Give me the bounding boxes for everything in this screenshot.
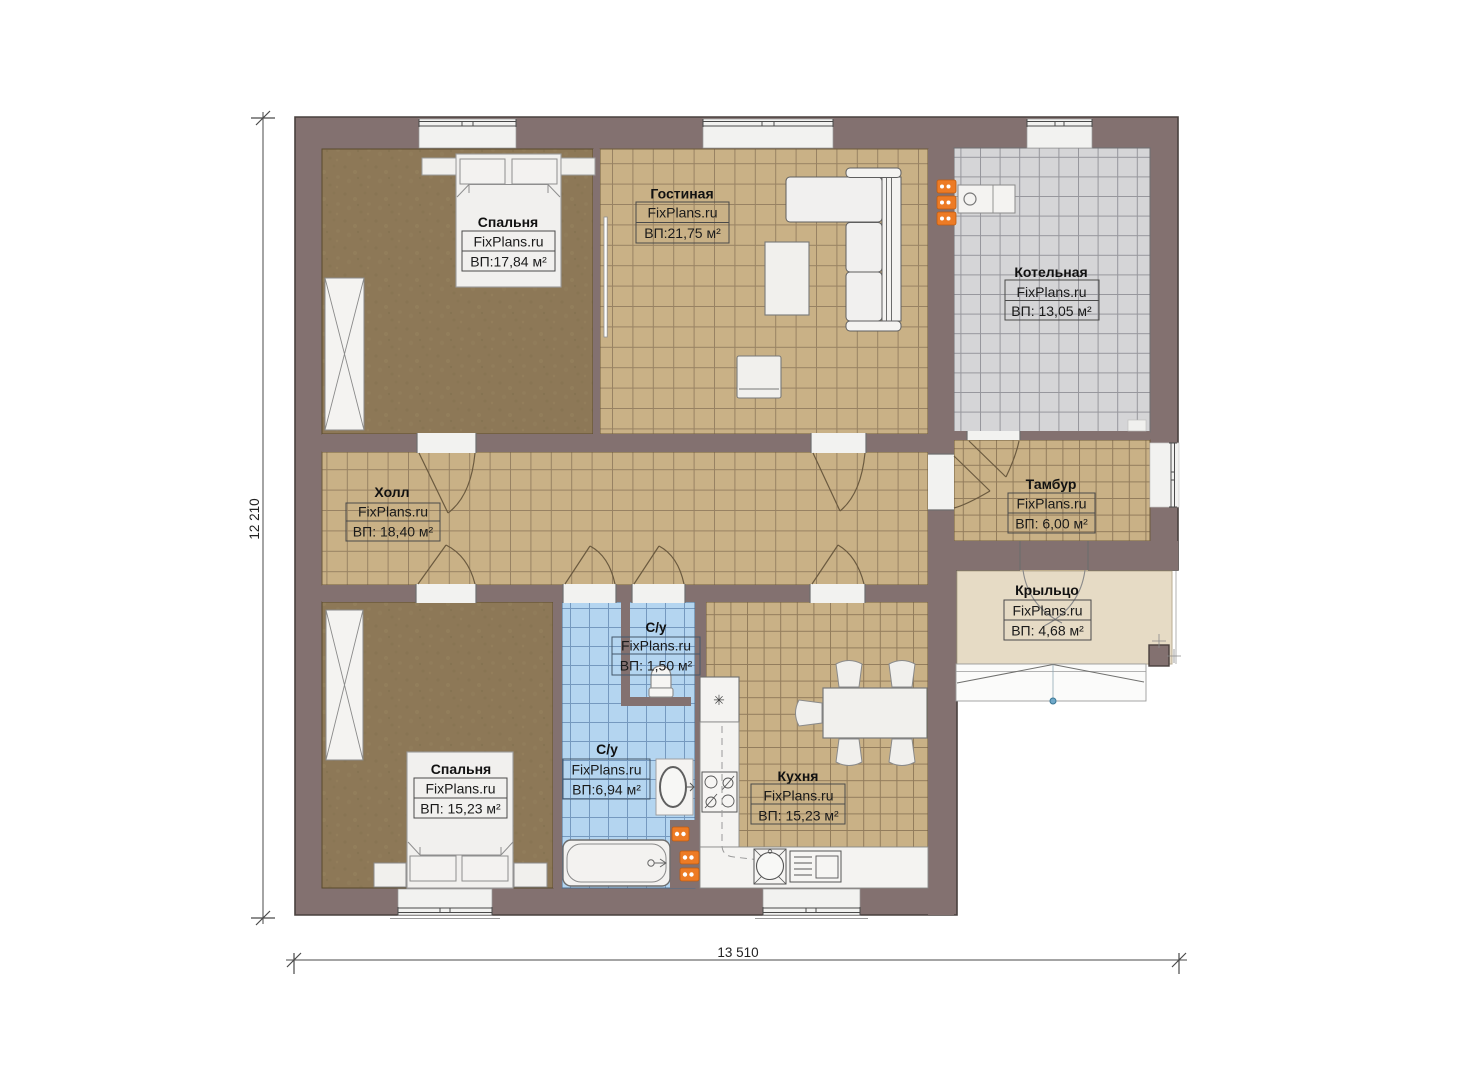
svg-text:FixPlans.ru: FixPlans.ru xyxy=(571,762,641,778)
svg-text:Холл: Холл xyxy=(374,484,409,500)
svg-text:FixPlans.ru: FixPlans.ru xyxy=(1016,284,1086,300)
svg-text:13 510: 13 510 xyxy=(717,945,758,960)
svg-text:Котельная: Котельная xyxy=(1014,264,1087,280)
svg-text:Спальня: Спальня xyxy=(431,761,491,777)
svg-text:Кухня: Кухня xyxy=(778,768,819,784)
svg-text:ВП: 15,23 м²: ВП: 15,23 м² xyxy=(420,801,501,817)
svg-text:С/у: С/у xyxy=(645,620,667,635)
svg-text:С/у: С/у xyxy=(596,741,618,757)
svg-text:FixPlans.ru: FixPlans.ru xyxy=(647,205,717,221)
svg-text:Крыльцо: Крыльцо xyxy=(1015,582,1079,598)
svg-text:Гостиная: Гостиная xyxy=(650,186,713,202)
svg-text:Спальня: Спальня xyxy=(478,214,538,230)
svg-text:FixPlans.ru: FixPlans.ru xyxy=(621,638,691,654)
svg-text:FixPlans.ru: FixPlans.ru xyxy=(1016,496,1086,512)
svg-text:ВП: 13,05 м²: ВП: 13,05 м² xyxy=(1011,303,1092,319)
svg-text:ВП: 6,00 м²: ВП: 6,00 м² xyxy=(1015,516,1088,532)
svg-text:ВП: 15,23 м²: ВП: 15,23 м² xyxy=(758,808,839,824)
svg-text:FixPlans.ru: FixPlans.ru xyxy=(1012,603,1082,619)
svg-text:ВП: 4,68 м²: ВП: 4,68 м² xyxy=(1011,623,1084,639)
svg-text:ВП: 18,40 м²: ВП: 18,40 м² xyxy=(353,524,434,540)
svg-text:FixPlans.ru: FixPlans.ru xyxy=(473,234,543,250)
svg-text:ВП: 1,50 м²: ВП: 1,50 м² xyxy=(620,658,693,674)
svg-text:Тамбур: Тамбур xyxy=(1026,476,1077,492)
svg-text:ВП:21,75 м²: ВП:21,75 м² xyxy=(644,225,721,241)
svg-text:12 210: 12 210 xyxy=(247,498,262,539)
svg-text:ВП:6,94 м²: ВП:6,94 м² xyxy=(572,782,641,798)
svg-text:✳: ✳ xyxy=(713,692,725,708)
svg-text:FixPlans.ru: FixPlans.ru xyxy=(358,504,428,520)
svg-text:FixPlans.ru: FixPlans.ru xyxy=(763,788,833,804)
svg-text:ВП:17,84 м²: ВП:17,84 м² xyxy=(470,254,547,270)
svg-text:FixPlans.ru: FixPlans.ru xyxy=(425,781,495,797)
